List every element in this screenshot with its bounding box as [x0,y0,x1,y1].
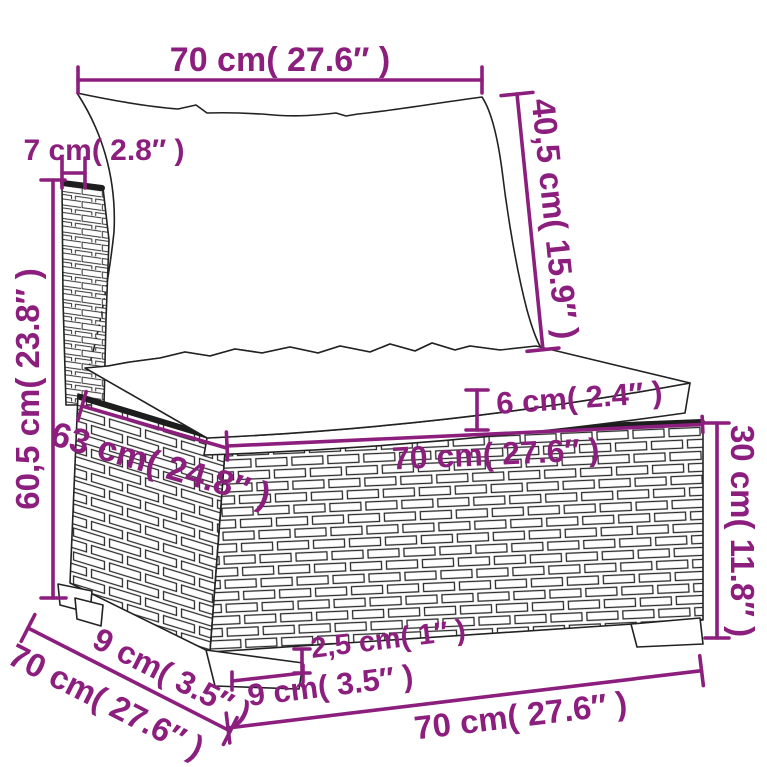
dim-overall-height-label: 60,5 cm( 23.8″ ) [9,268,46,509]
dim-overall-height: 60,5 cm( 23.8″ ) [9,180,66,598]
leg-mid-left [75,598,103,626]
dim-back-panel-thickness-label: 7 cm( 2.8″ ) [23,134,184,167]
dim-base-height-label: 30 cm( 11.8″ ) [724,425,761,637]
product-dimension-image: 70 cm( 27.6″ ) 7 cm( 2.8″ ) 40,5 cm( 15.… [0,0,767,767]
dim-back-cushion-width: 70 cm( 27.6″ ) [78,41,482,93]
dim-base-height: 30 cm( 11.8″ ) [705,423,761,638]
dim-back-cushion-width-label: 70 cm( 27.6″ ) [170,41,390,79]
leg-front-right [631,618,703,647]
product-diagram: 70 cm( 27.6″ ) 7 cm( 2.8″ ) 40,5 cm( 15.… [0,0,767,767]
dim-back-cushion-height-label: 40,5 cm( 15.9″ ) [525,97,586,341]
